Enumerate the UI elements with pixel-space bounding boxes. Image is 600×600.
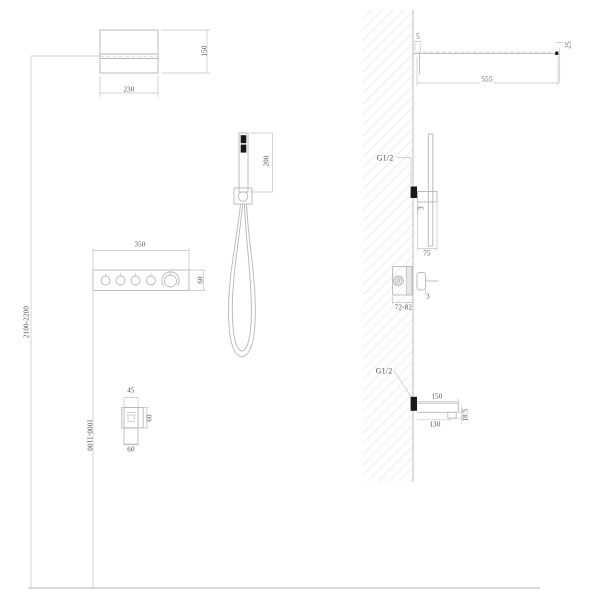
dim-holder-depth-lines [417,204,437,251]
dim-mount-height-head: 2100-2200 [24,306,31,338]
dim-handshower-length: 200 [264,155,271,166]
dim-mount-height-panel: 1000-1100 [86,419,93,451]
shower-hose [229,204,256,357]
dim-valve-height: 60 [147,414,154,421]
thread-label-lower: G1/2 [376,368,393,375]
thread-label-upper: G1/2 [377,154,394,161]
dim-arm-end-size: 25 [565,41,572,48]
overhead-shower-front [100,30,158,73]
dim-spout-end-height: 18.5 [463,408,470,421]
dim-valve-width: 45 [127,388,134,395]
dim-holder-depth: 75 [423,250,430,257]
dim-arm-length: 555 [480,76,493,83]
thermostat-panel-front [93,270,189,291]
shower-arm-side [413,52,558,75]
drawing-lines [0,0,600,600]
wall-section [363,10,413,482]
dim-arm-end-lines [556,43,564,83]
handshower-front [234,133,252,204]
dim-arm-plate-offset: 5 [416,34,420,41]
dim-valve-size: 60 [127,446,134,453]
dim-mixer-depth-range: 72-82 [395,305,412,312]
dim-spout-length-bottom: 130 [429,422,440,429]
installation-drawing: 230 150 200 350 60 2100-2200 1000-1100 4… [0,0,600,600]
dim-panel-width: 350 [134,242,145,249]
dim-panel-height: 60 [198,276,205,283]
dim-spout-length-top: 150 [431,394,442,401]
dim-head-width: 230 [123,87,134,94]
height-reference-lines [31,56,100,588]
dim-holder-gap: 3 [418,206,425,210]
dim-handle-gap: 3 [426,293,430,300]
dim-head-height: 150 [202,45,209,56]
dim-arm-plate-lines [413,42,421,52]
dim-panel-width-lines [93,249,189,271]
